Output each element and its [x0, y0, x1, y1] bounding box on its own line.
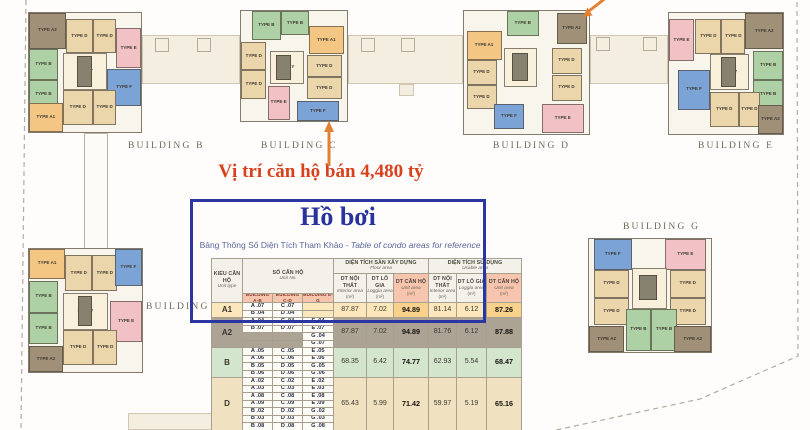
building-plan-d: TYPE BTYPE A2TYPE A1TYPE DTYPE DLOBBYTYP… [463, 10, 590, 135]
unit-label: TYPE B [35, 92, 51, 97]
header-sub: DT CĂN HỘUnit area(m²) [393, 273, 429, 303]
area-value-cell: 94.89 [393, 302, 429, 318]
area-value-cell: 5.54 [456, 347, 487, 378]
unit-type-d: TYPE D [93, 330, 117, 364]
unit-label: TYPE D [97, 345, 113, 350]
unit-type-e: TYPE E [542, 104, 585, 132]
unit-type-d: TYPE D [670, 270, 707, 298]
unit-type-a1: TYPE A1 [309, 26, 344, 54]
header-floor-area: DIỆN TÍCH SÀN XÂY DỰNGFloor area [333, 258, 429, 274]
unit-type-a1: TYPE A1 [29, 103, 63, 132]
unit-label: TYPE B [287, 21, 303, 26]
unit-label: TYPE F [501, 114, 517, 119]
unit-type-d: TYPE D [695, 19, 721, 54]
building-label-e: BUILDING E [698, 141, 774, 151]
unit-type-d: TYPE D [721, 19, 745, 54]
building-plan-a: TYPE A1TYPE DTYPE DTYPE FTYPE BTYPE BLOB… [28, 248, 143, 373]
unit-type-d: TYPE D [66, 19, 93, 54]
building-plan-e: TYPE ETYPE DTYPE DTYPE A2TYPE BTYPE BLOB… [668, 12, 784, 135]
area-value-cell: 5.19 [456, 377, 487, 430]
area-value-cell: 6.42 [366, 347, 394, 378]
building-plan-b: TYPE A2TYPE DTYPE DTYPE ETYPE BTYPE BLOB… [28, 12, 142, 133]
area-value-cell: 87.88 [486, 317, 522, 348]
unit-label: TYPE D [70, 105, 86, 110]
area-value-cell: 65.43 [333, 377, 367, 430]
unit-label: TYPE D [246, 54, 262, 59]
area-value-cell: 87.26 [486, 302, 522, 318]
header-sub: DT NỘI THẤTInterior area(m²) [333, 273, 367, 303]
unit-label: TYPE D [741, 107, 757, 112]
unit-label: TYPE A2 [597, 337, 616, 342]
unit-no-cell: D .08 [272, 422, 303, 430]
unit-label: TYPE B [760, 92, 776, 97]
unit-type-e: TYPE E [665, 239, 706, 270]
unit-label: TYPE D [316, 86, 332, 91]
unit-type-f: TYPE F [678, 70, 710, 110]
area-value-cell: 7.02 [366, 302, 394, 318]
area-value-cell: 74.77 [393, 347, 429, 378]
unit-label: TYPE D [700, 34, 716, 39]
unit-label: TYPE D [680, 281, 696, 286]
unit-label: TYPE D [680, 309, 696, 314]
unit-type-d: TYPE D [307, 77, 342, 99]
area-value-cell: 5.99 [366, 377, 394, 430]
area-value-cell: 62.93 [428, 347, 457, 378]
unit-label: TYPE D [725, 34, 741, 39]
unit-label: TYPE E [271, 100, 287, 105]
elevator-core [639, 275, 657, 300]
elevator-core [276, 55, 291, 80]
unit-label: TYPE A2 [37, 357, 56, 362]
unit-label: TYPE B [656, 327, 672, 332]
unit-type-e: TYPE E [669, 19, 694, 61]
table-subtitle: Bảng Thông Số Diện Tích Tham Khảo - Tabl… [150, 240, 530, 250]
unit-label: TYPE A1 [38, 261, 57, 266]
unit-type-f: TYPE F [297, 101, 338, 121]
area-value-cell: 6.12 [456, 317, 487, 348]
unit-type-d: TYPE D [594, 298, 629, 325]
area-value-cell: 65.16 [486, 377, 522, 430]
area-value-cell: 6.12 [456, 302, 487, 318]
unit-label: TYPE D [71, 271, 87, 276]
unit-label: TYPE A2 [562, 26, 581, 31]
unit-label: TYPE E [555, 116, 571, 121]
unit-type-b: TYPE B [29, 313, 58, 344]
unit-label: TYPE B [515, 21, 531, 26]
unit-type-a2: TYPE A2 [29, 346, 63, 372]
row-type-B: B [211, 347, 243, 378]
unit-label: TYPE D [316, 64, 332, 69]
unit-label: TYPE D [97, 271, 113, 276]
building-label-g: BUILDING G [623, 222, 700, 232]
header-sub: DT LÔ GIALoggia area(m²) [366, 273, 394, 303]
row-type-A1: A1 [211, 302, 243, 318]
area-value-cell: 81.76 [428, 317, 457, 348]
building-plan-g: TYPE FTYPE ETYPE DTYPE DTYPE DTYPE DLOBB… [588, 238, 712, 353]
unit-type-b: TYPE B [281, 11, 309, 35]
unit-type-d: TYPE D [467, 60, 497, 85]
unit-no-cell: G .08 [302, 422, 334, 430]
table-subtitle-vi: Bảng Thông Số Diện Tích Tham Khảo [200, 240, 344, 250]
elevator-core [78, 296, 93, 327]
table-subtitle-en: - Table of condo areas for reference [346, 240, 481, 250]
unit-type-a2: TYPE A2 [557, 13, 587, 44]
unit-type-a2: TYPE A2 [745, 13, 783, 49]
unit-type-d: TYPE D [710, 92, 739, 127]
unit-label: TYPE D [558, 58, 574, 63]
unit-label: TYPE A2 [683, 337, 702, 342]
unit-label: TYPE B [258, 23, 274, 28]
building-plan-c: TYPE BTYPE BTYPE A1TYPE DTYPE DLOBBYTYPE… [240, 10, 348, 122]
unit-label: TYPE D [716, 107, 732, 112]
unit-label: TYPE E [674, 38, 690, 43]
unit-type-e: TYPE E [116, 28, 141, 67]
unit-label: TYPE B [35, 62, 51, 67]
unit-type-e: TYPE E [268, 86, 290, 120]
unit-type-f: TYPE F [494, 104, 524, 129]
building-label-d: BUILDING D [493, 141, 570, 151]
unit-type-d: TYPE D [63, 330, 94, 364]
unit-label: TYPE D [246, 82, 262, 87]
pool-title: Hồ bơi [190, 202, 486, 232]
unit-label: TYPE A1 [317, 38, 336, 43]
unit-label: TYPE D [96, 105, 112, 110]
unit-type-a2: TYPE A2 [589, 326, 624, 352]
header-sub: DT LÔ GIALoggia area(m²) [456, 273, 487, 303]
unit-label: TYPE F [605, 252, 621, 257]
area-value-cell: 7.02 [366, 317, 394, 348]
area-value-cell: 81.14 [428, 302, 457, 318]
price-annotation: Vị trí căn hộ bán 4,480 tỷ [181, 161, 461, 183]
unit-label: TYPE F [686, 87, 702, 92]
unit-type-d: TYPE D [467, 85, 497, 110]
area-value-cell: 59.97 [428, 377, 457, 430]
unit-label: TYPE D [96, 34, 112, 39]
unit-type-a2: TYPE A2 [29, 13, 66, 49]
unit-label: TYPE D [603, 309, 619, 314]
unit-type-b: TYPE B [626, 309, 652, 351]
unit-type-d: TYPE D [241, 70, 266, 99]
unit-label: TYPE B [630, 327, 646, 332]
unit-type-b: TYPE B [753, 51, 783, 80]
unit-type-d: TYPE D [552, 75, 582, 101]
unit-type-d: TYPE D [93, 90, 117, 125]
area-value-cell: 87.87 [333, 302, 367, 318]
row-type-A2: A2 [211, 317, 243, 348]
unit-type-d: TYPE D [307, 55, 342, 77]
unit-type-b: TYPE B [507, 11, 540, 36]
unit-label: TYPE D [71, 34, 87, 39]
area-value-cell: 71.42 [393, 377, 429, 430]
unit-label: TYPE A2 [761, 117, 780, 122]
unit-type-b: TYPE B [252, 11, 282, 40]
header-usable-area: DIỆN TÍCH SỬ DỤNGUsable area [428, 258, 522, 274]
unit-label: TYPE E [118, 319, 134, 324]
area-value-cell: 68.35 [333, 347, 367, 378]
unit-label: TYPE B [760, 63, 776, 68]
unit-type-a2: TYPE A2 [758, 105, 783, 134]
unit-label: TYPE D [473, 70, 489, 75]
unit-label: TYPE E [677, 252, 693, 257]
area-value-cell: 68.47 [486, 347, 522, 378]
row-type-D: D [211, 377, 243, 430]
unit-type-d: TYPE D [63, 90, 93, 125]
unit-no-cell: B .08 [242, 422, 273, 430]
unit-label: TYPE B [36, 294, 52, 299]
unit-label: TYPE A1 [475, 43, 494, 48]
unit-type-f: TYPE F [594, 239, 632, 270]
header-sub: DT NỘI THẤTInterior area(m²) [428, 273, 457, 303]
elevator-core [77, 56, 92, 87]
unit-type-b: TYPE B [651, 309, 677, 351]
unit-type-b: TYPE B [29, 49, 58, 80]
building-label-b: BUILDING B [128, 141, 205, 151]
unit-label: TYPE E [121, 46, 137, 51]
unit-label: TYPE D [558, 85, 574, 90]
unit-label: TYPE F [121, 265, 137, 270]
elevator-core [721, 57, 736, 87]
unit-type-d: TYPE D [65, 255, 92, 291]
unit-type-b: TYPE B [29, 281, 58, 313]
unit-type-d: TYPE D [92, 255, 117, 291]
area-value-cell: 87.87 [333, 317, 367, 348]
unit-type-a2: TYPE A2 [674, 326, 711, 352]
unit-label: TYPE B [36, 326, 52, 331]
unit-type-d: TYPE D [594, 270, 629, 298]
unit-label: TYPE A1 [37, 115, 56, 120]
unit-type-a1: TYPE A1 [467, 31, 502, 61]
unit-label: TYPE F [310, 109, 326, 114]
unit-type-d: TYPE D [552, 48, 582, 74]
elevator-core [512, 53, 528, 81]
unit-label: TYPE F [116, 85, 132, 90]
unit-label: TYPE D [473, 95, 489, 100]
header-sub: DT CĂN HỘUnit area(m²) [486, 273, 522, 303]
header-unit-type: KIỂU CĂN HỘUnit type [211, 258, 243, 303]
unit-label: TYPE D [603, 281, 619, 286]
site-plan: TYPE A2TYPE DTYPE DTYPE ETYPE BTYPE BLOB… [0, 0, 810, 430]
unit-label: TYPE A2 [755, 29, 774, 34]
unit-type-d: TYPE D [93, 19, 117, 54]
header-unit-no: SỐ CĂN HỘUnit No. [242, 258, 334, 294]
unit-label: TYPE D [70, 345, 86, 350]
unit-type-f: TYPE F [115, 249, 142, 286]
building-label-c: BUILDING C [261, 141, 338, 151]
unit-type-a1: TYPE A1 [29, 249, 65, 279]
unit-type-d: TYPE D [241, 42, 266, 71]
condo-table: KIỂU CĂN HỘUnit typeSỐ CĂN HỘUnit No.BUI… [211, 258, 523, 430]
area-value-cell: 94.89 [393, 317, 429, 348]
unit-label: TYPE A2 [38, 28, 57, 33]
